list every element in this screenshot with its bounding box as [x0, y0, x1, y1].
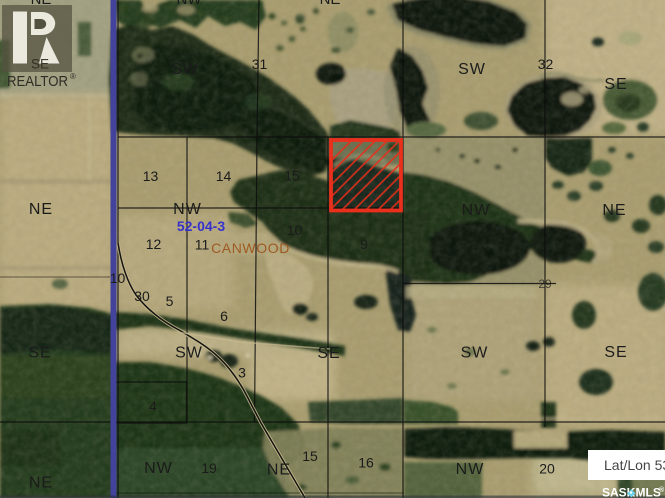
svg-text:SE: SE — [317, 345, 340, 362]
svg-text:10: 10 — [287, 222, 303, 238]
svg-text:52-04-3: 52-04-3 — [177, 218, 225, 234]
svg-text:SE: SE — [604, 76, 627, 93]
svg-text:NE: NE — [29, 475, 53, 492]
svg-text:SE: SE — [604, 344, 627, 361]
svg-text:16: 16 — [358, 455, 374, 471]
svg-text:REALTOR: REALTOR — [7, 73, 68, 90]
svg-text:SW: SW — [458, 61, 486, 78]
svg-text:11: 11 — [195, 237, 210, 253]
svg-text:MLS: MLS — [636, 486, 661, 498]
svg-text:SW: SW — [171, 61, 199, 78]
svg-text:9: 9 — [360, 236, 368, 252]
svg-text:SE: SE — [28, 345, 51, 362]
svg-text:®: ® — [659, 486, 665, 494]
svg-text:NW: NW — [456, 461, 485, 478]
svg-text:15: 15 — [284, 168, 300, 184]
svg-text:NW: NW — [144, 460, 173, 477]
svg-text:29: 29 — [538, 277, 552, 291]
svg-text:NE: NE — [320, 0, 341, 8]
svg-text:NW: NW — [173, 201, 202, 218]
svg-text:12: 12 — [146, 236, 162, 252]
svg-text:10: 10 — [110, 270, 126, 286]
svg-text:30: 30 — [134, 288, 150, 304]
svg-text:SW: SW — [461, 345, 489, 362]
svg-text:Lat/Lon 53: Lat/Lon 53 — [604, 457, 665, 473]
svg-text:31: 31 — [252, 56, 268, 72]
svg-text:NE: NE — [602, 202, 626, 219]
svg-text:15: 15 — [302, 448, 318, 464]
svg-text:13: 13 — [143, 168, 159, 184]
svg-text:5: 5 — [166, 293, 174, 309]
svg-text:NW: NW — [462, 202, 491, 219]
svg-text:3: 3 — [238, 365, 246, 381]
svg-text:19: 19 — [201, 460, 217, 476]
svg-text:4: 4 — [149, 398, 157, 414]
svg-text:NW: NW — [177, 0, 203, 8]
svg-text:CANWOOD: CANWOOD — [211, 240, 290, 256]
svg-text:SW: SW — [175, 345, 203, 362]
svg-text:®: ® — [70, 72, 76, 81]
svg-text:20: 20 — [539, 461, 555, 477]
svg-text:NE: NE — [29, 201, 53, 218]
svg-text:14: 14 — [216, 168, 232, 184]
svg-text:32: 32 — [538, 56, 554, 72]
svg-text:NE: NE — [267, 462, 291, 479]
svg-text:6: 6 — [220, 308, 228, 324]
svg-text:SE: SE — [31, 57, 49, 72]
